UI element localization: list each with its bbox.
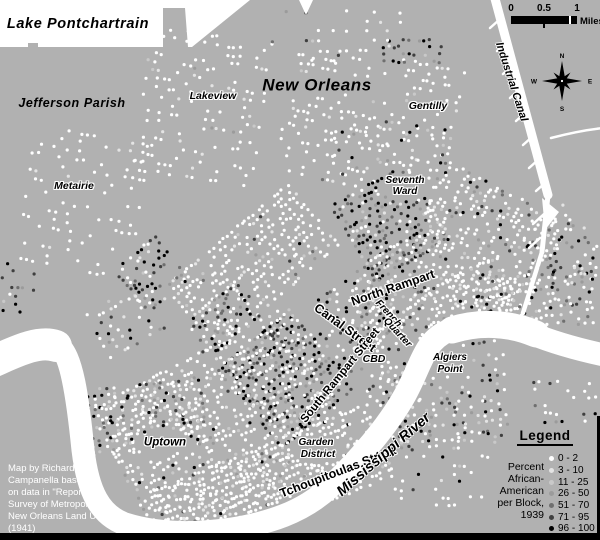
label-seventh-ward-1: Seventh (386, 176, 425, 186)
scale-bar-divider (569, 16, 571, 24)
label-lakeview: Lakeview (190, 91, 237, 102)
legend-description: Percent African- American per Block, 193… (494, 461, 544, 521)
map-attribution: Map by Richard Campanella based on data … (8, 463, 110, 535)
legend-swatch-0-2 (549, 456, 554, 461)
scale-tick-half: 0.5 (537, 3, 551, 14)
label-algiers-point-1: Algiers (433, 353, 467, 363)
legend-item: 11 - 25 (549, 476, 595, 488)
map-border-bottom (0, 533, 600, 540)
label-gentilly: Gentilly (409, 101, 448, 112)
scale-tick-1: 1 (574, 3, 580, 14)
scale-tick-0: 0 (508, 3, 514, 14)
legend-item: 71 - 95 (549, 511, 595, 523)
label-garden-district-2: District (301, 450, 335, 460)
compass-center (561, 80, 563, 82)
scale-bar: 0 0.5 1 Miles (505, 3, 600, 31)
legend-swatch-11-25 (549, 480, 554, 485)
compass-n: N (560, 53, 565, 60)
legend-title: Legend (499, 428, 591, 443)
legend-swatch-71-95 (549, 515, 554, 520)
compass-rose-icon: N S W E (530, 49, 594, 113)
label-metairie: Metairie (54, 181, 94, 192)
legend-item: 51 - 70 (549, 500, 595, 512)
legend-swatch-96-100 (549, 526, 554, 531)
scale-bar-rule (511, 16, 577, 24)
legend-item: 3 - 10 (549, 465, 595, 477)
label-garden-district-1: Garden (298, 438, 333, 448)
legend-items: 0 - 2 3 - 10 11 - 25 26 - 50 51 - 70 71 … (549, 453, 595, 535)
label-new-orleans: New Orleans (262, 77, 372, 94)
scale-unit-label: Miles (580, 16, 600, 27)
scale-bar-midtick (543, 24, 545, 28)
legend-swatch-3-10 (549, 468, 554, 473)
map-canvas: Lake PontchartrainJefferson ParishNew Or… (0, 0, 600, 540)
label-algiers-point-2: Point (438, 365, 463, 375)
legend-item: 26 - 50 (549, 488, 595, 500)
legend-item: 0 - 2 (549, 453, 595, 465)
label-cbd: CBD (363, 354, 386, 365)
legend: Legend Percent African- American per Blo… (494, 428, 596, 443)
label-seventh-ward-2: Ward (393, 187, 418, 197)
label-lake-pontchartrain: Lake Pontchartrain (7, 17, 149, 32)
label-jefferson-parish: Jefferson Parish (18, 97, 125, 110)
compass-w: W (531, 79, 538, 86)
legend-swatch-51-70 (549, 503, 554, 508)
compass-s: S (560, 106, 565, 113)
legend-swatch-26-50 (549, 491, 554, 496)
label-uptown: Uptown (144, 437, 186, 449)
compass-e: E (588, 79, 593, 86)
